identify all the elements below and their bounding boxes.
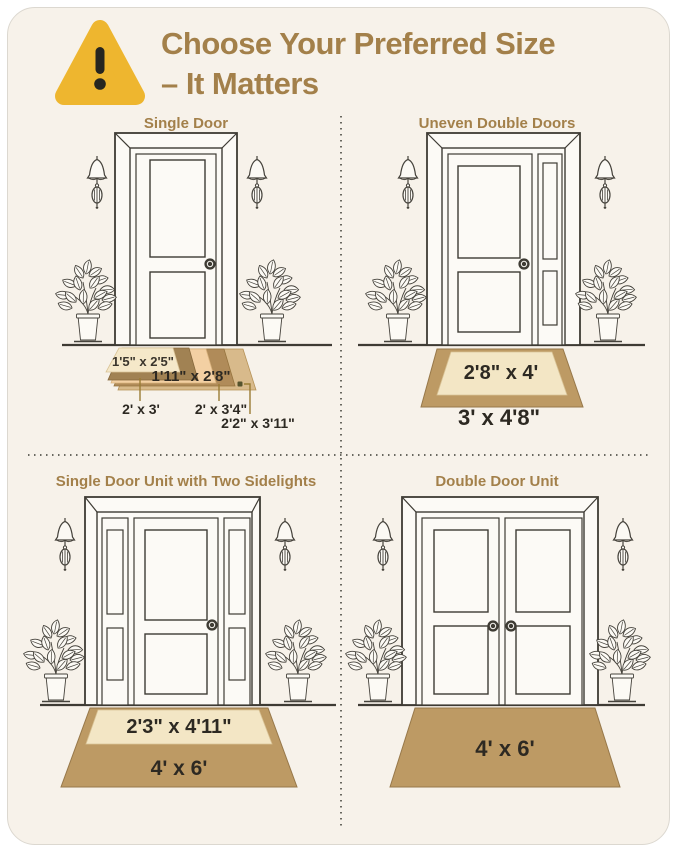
mat-size-label: 4' x 6' xyxy=(475,736,534,761)
single-door-illustration xyxy=(115,133,237,345)
single-door-mat-stack: 1'5" x 2'5" 1'11" x 2'8" 2' x 3' 2' x 3'… xyxy=(106,348,295,431)
section-title-single-door: Single Door xyxy=(30,115,342,132)
wall-lamp-icon xyxy=(248,156,267,209)
potted-plant-icon xyxy=(239,259,301,342)
wall-lamp-icon xyxy=(276,518,295,571)
wall-lamp-icon xyxy=(614,518,633,571)
wall-lamp-icon xyxy=(88,156,107,209)
potted-plant-icon xyxy=(55,259,117,342)
potted-plant-icon xyxy=(345,619,407,702)
mat-size-label: 2'3" x 4'11" xyxy=(126,716,231,738)
mat-size-label: 2'2" x 3'11" xyxy=(221,415,295,431)
double-door-mat: 4' x 6' xyxy=(390,708,620,787)
potted-plant-icon xyxy=(575,259,637,342)
page-title-line2: – It Matters xyxy=(161,64,661,104)
mat-size-label: 1'5" x 2'5" xyxy=(112,354,174,369)
single-door-sidelights-illustration xyxy=(85,497,260,705)
infographic: 1'5" x 2'5" 1'11" x 2'8" 2' x 3' 2' x 3'… xyxy=(0,0,679,854)
double-door-scene: 4' x 6' xyxy=(345,497,651,787)
single-door-scene: 1'5" x 2'5" 1'11" x 2'8" 2' x 3' 2' x 3'… xyxy=(55,133,332,431)
page-title: Choose Your Preferred Size – It Matters xyxy=(161,24,661,104)
mat-size-label: 2'8" x 4' xyxy=(464,362,539,384)
section-title-double-door: Double Door Unit xyxy=(347,473,647,490)
double-door-illustration xyxy=(402,497,598,705)
wall-lamp-icon xyxy=(56,518,75,571)
mat-size-label: 4' x 6' xyxy=(151,757,208,780)
warning-icon xyxy=(55,16,145,110)
potted-plant-icon xyxy=(365,259,427,342)
mat-size-label: 1'11" x 2'8" xyxy=(152,368,231,385)
size-marker-dot xyxy=(238,382,243,387)
uneven-double-doors-mats: 2'8" x 4' 3' x 4'8" xyxy=(421,349,583,430)
single-door-sidelights-scene: 2'3" x 4'11" 4' x 6' xyxy=(23,497,336,787)
uneven-double-doors-scene: 2'8" x 4' 3' x 4'8" xyxy=(358,133,645,430)
wall-lamp-icon xyxy=(374,518,393,571)
mat-size-label: 2' x 3' xyxy=(122,401,160,417)
wall-lamp-icon xyxy=(596,156,615,209)
section-title-uneven-double-doors: Uneven Double Doors xyxy=(347,115,647,132)
doorknob-icon xyxy=(206,260,215,269)
doorknob-icon xyxy=(520,260,529,269)
potted-plant-icon xyxy=(265,619,327,702)
potted-plant-icon xyxy=(23,619,85,702)
doorknob-icon xyxy=(489,622,498,631)
single-door-sidelights-mats: 2'3" x 4'11" 4' x 6' xyxy=(61,708,297,787)
mat-size-label: 3' x 4'8" xyxy=(458,405,540,430)
page-title-line1: Choose Your Preferred Size xyxy=(161,24,661,64)
wall-lamp-icon xyxy=(399,156,418,209)
doorknob-icon xyxy=(208,621,217,630)
uneven-double-doors-illustration xyxy=(427,133,580,345)
doorknob-icon xyxy=(507,622,516,631)
section-title-single-door-sidelights: Single Door Unit with Two Sidelights xyxy=(30,473,342,490)
